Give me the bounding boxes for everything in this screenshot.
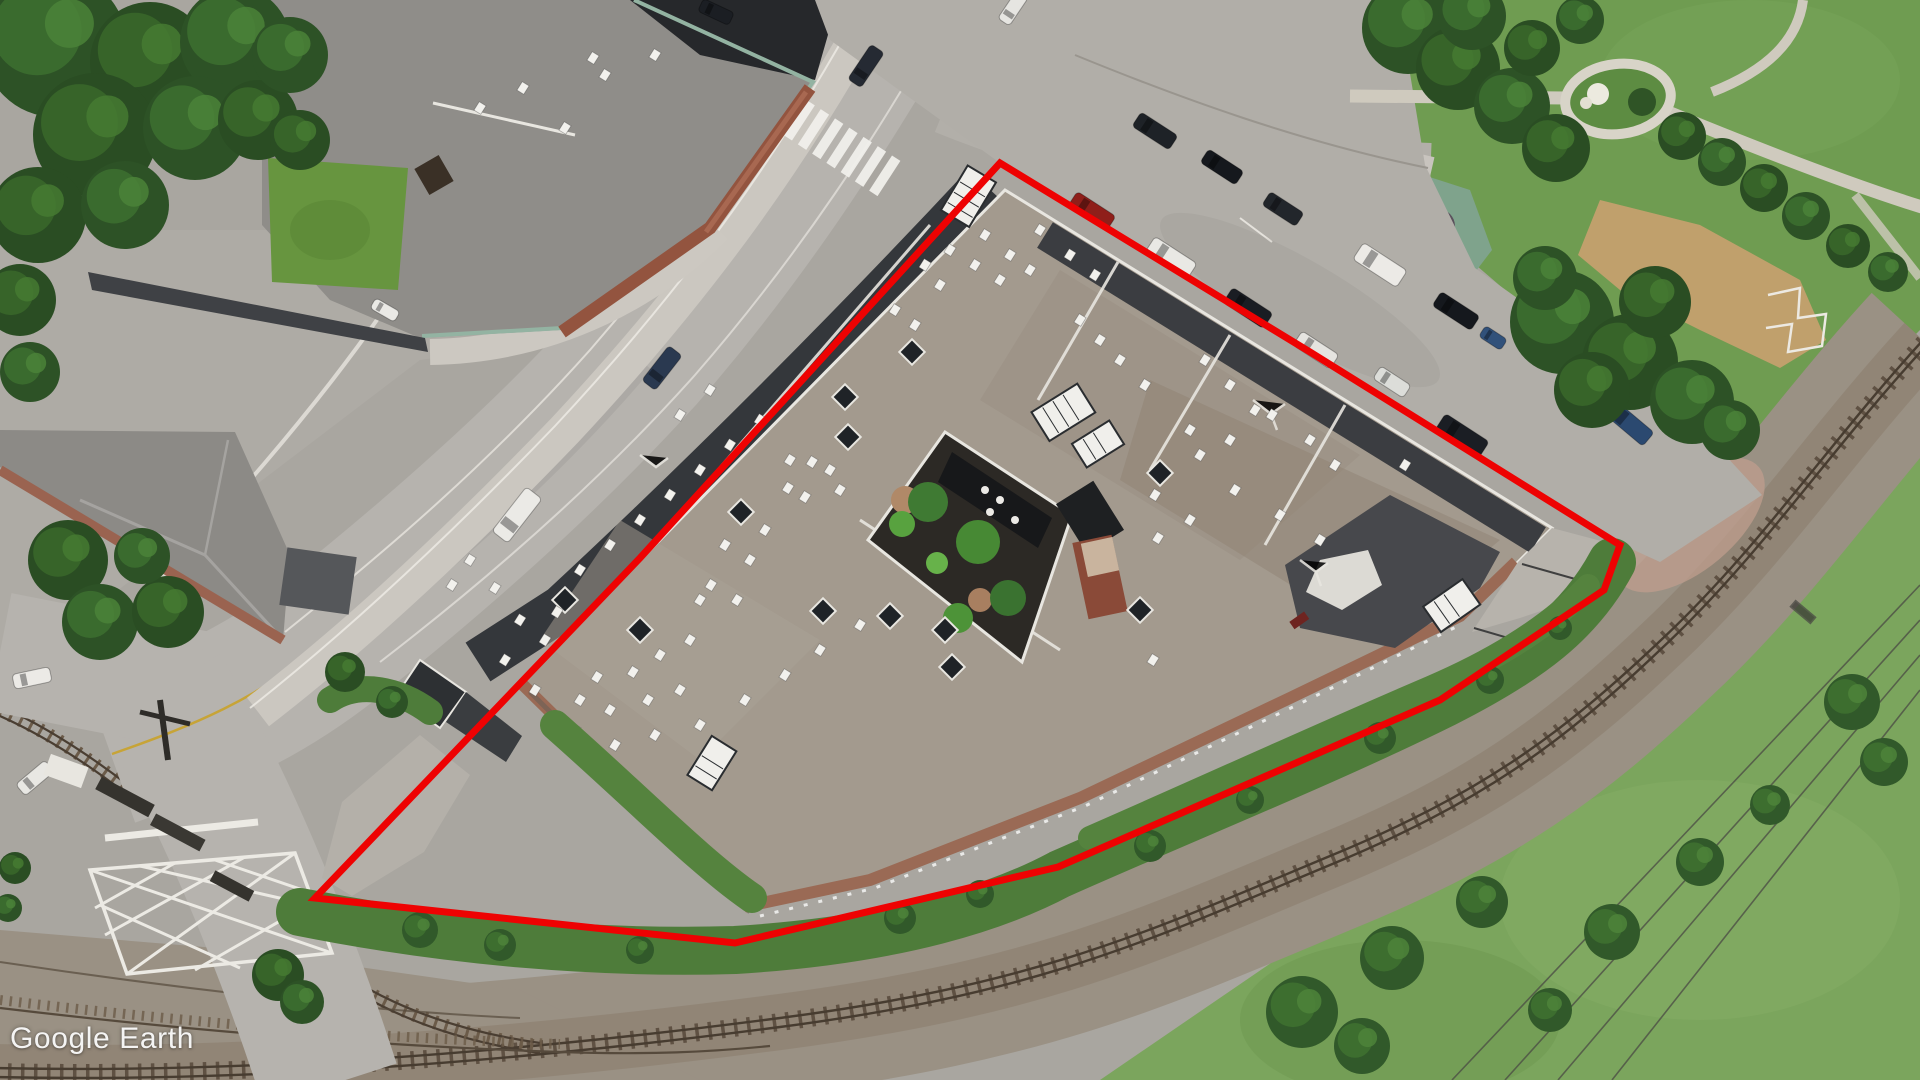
tree-clump — [1740, 164, 1788, 212]
tree-clump — [1522, 114, 1590, 182]
tree-clump — [1698, 138, 1746, 186]
tree-clump — [1700, 400, 1760, 460]
tree-clump — [114, 528, 170, 584]
tree-clump — [1676, 838, 1724, 886]
tree-clump — [1860, 738, 1908, 786]
tree-clump — [376, 686, 408, 718]
annex-roof — [279, 547, 356, 614]
tree-clump — [280, 980, 324, 1024]
tree-clump — [62, 584, 138, 660]
tree-clump — [1334, 1018, 1390, 1074]
tree-clump — [0, 852, 31, 884]
tree-clump — [1619, 266, 1691, 338]
tree-clump — [1504, 20, 1560, 76]
map-canvas[interactable]: Google Earth — [0, 0, 1920, 1080]
tree-clump — [132, 576, 204, 648]
tree-clump — [1456, 876, 1508, 928]
tree-clump — [1826, 224, 1870, 268]
tree-clump — [1528, 988, 1572, 1032]
tree-clump — [1868, 252, 1908, 292]
tree-clump — [484, 929, 516, 961]
tree-clump — [1554, 352, 1630, 428]
tree-clump — [1584, 904, 1640, 960]
tree-clump — [252, 17, 328, 93]
tree-clump — [1824, 674, 1880, 730]
tree-clump — [1658, 112, 1706, 160]
aerial-imagery — [0, 0, 1920, 1080]
tree-clump — [1513, 246, 1577, 310]
tree-clump — [1266, 976, 1338, 1048]
tree-clump — [1782, 192, 1830, 240]
google-earth-watermark: Google Earth — [10, 1022, 194, 1056]
tree-clump — [270, 110, 330, 170]
tree-clump — [81, 161, 169, 249]
tree-clump — [1360, 926, 1424, 990]
tree-clump — [402, 912, 438, 948]
tree-clump — [325, 652, 365, 692]
tree-clump — [1750, 785, 1790, 825]
tree-clump — [626, 936, 654, 964]
tree-clump — [0, 342, 60, 402]
